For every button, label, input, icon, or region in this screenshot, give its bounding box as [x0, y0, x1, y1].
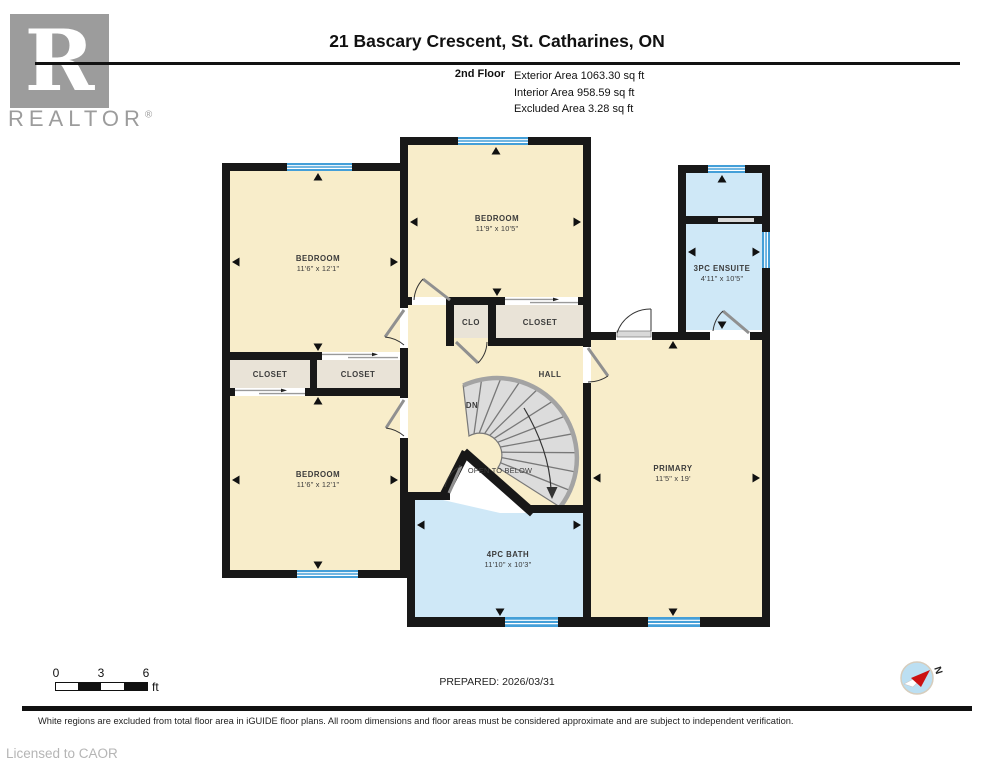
window-bedroom-tl [287, 163, 352, 171]
window-primary [648, 617, 700, 627]
window-shower [708, 165, 745, 173]
window-bedroom-tm [458, 137, 528, 145]
label-bedroom-bl: BEDROOM [296, 470, 340, 479]
dims-ensuite: 4'11" x 10'5" [701, 274, 744, 283]
dims-bedroom-bl: 11'6" x 12'1" [297, 480, 340, 489]
label-closet-left: CLOSET [253, 370, 288, 379]
dims-primary: 11'5" x 19' [655, 474, 691, 483]
door-primary-top [617, 309, 651, 337]
label-bedroom-tm: BEDROOM [475, 214, 519, 223]
license-text: Licensed to CAOR [6, 746, 118, 761]
window-bath [505, 617, 558, 627]
window-ensuite [762, 232, 770, 268]
disclaimer-text: White regions are excluded from total fl… [38, 716, 958, 726]
label-bath: 4PC BATH [487, 550, 529, 559]
sliding-door-closet-left [235, 388, 305, 396]
compass: N [893, 655, 963, 703]
sliding-door-closet-top [505, 297, 578, 305]
label-closet-top: CLOSET [523, 318, 558, 327]
compass-north-label: N [931, 665, 944, 675]
prepared-date: PREPARED: 2026/03/31 [0, 676, 994, 688]
dims-bedroom-tl: 11'6" x 12'1" [297, 264, 340, 273]
floorplan-page: R REALTOR® 21 Bascary Crescent, St. Cath… [0, 0, 994, 768]
label-primary: PRIMARY [653, 464, 692, 473]
label-clo: CLO [462, 318, 480, 327]
footer-divider [22, 706, 972, 711]
label-hall: HALL [539, 370, 562, 379]
label-ensuite: 3PC ENSUITE [694, 264, 751, 273]
label-stairs-dn: DN [466, 401, 478, 410]
label-open-to-below: OPEN TO BELOW [468, 466, 532, 475]
dims-bedroom-tm: 11'9" x 10'5" [476, 224, 519, 233]
label-closet-mid: CLOSET [341, 370, 376, 379]
sliding-door-closet-mid [322, 352, 398, 360]
floor-plan: BEDROOM 11'6" x 12'1" BEDROOM 11'9" x 10… [0, 0, 994, 768]
dims-bath: 11'10" x 10'3" [485, 560, 532, 569]
window-bedroom-bl [297, 570, 358, 578]
label-bedroom-tl: BEDROOM [296, 254, 340, 263]
